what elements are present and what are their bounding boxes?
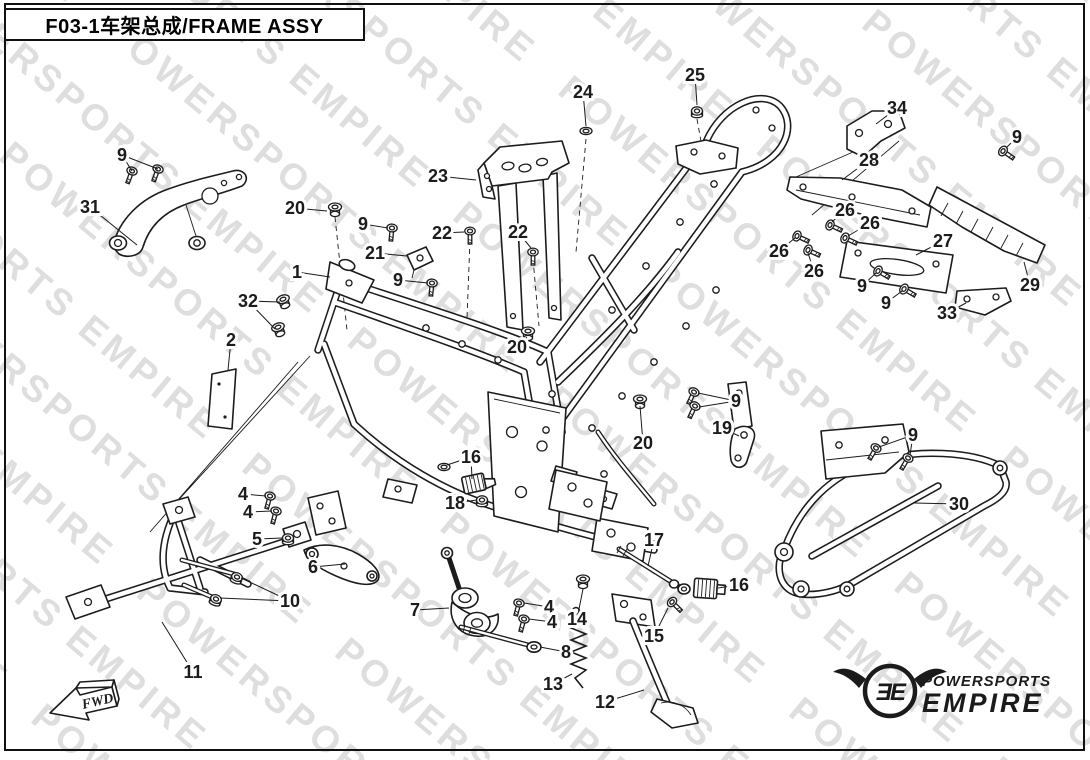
leader-line bbox=[122, 155, 158, 169]
callout-label: 34 bbox=[887, 98, 907, 118]
callout-label: 21 bbox=[365, 243, 385, 263]
link-19 bbox=[730, 426, 754, 467]
callout-label: 12 bbox=[595, 692, 615, 712]
bushing-icon bbox=[270, 321, 287, 338]
bolt-icon bbox=[666, 596, 685, 615]
callout-label: 29 bbox=[1020, 275, 1040, 295]
bolt-icon bbox=[528, 248, 538, 265]
callout-label: 26 bbox=[804, 261, 824, 281]
side-stand-12 bbox=[612, 594, 698, 728]
washer-icon bbox=[580, 127, 592, 134]
callout-label: 4 bbox=[243, 502, 253, 522]
tensioner-7 bbox=[442, 548, 499, 637]
bolt-icon bbox=[426, 279, 438, 297]
callout-label: 16 bbox=[461, 447, 481, 467]
callout-label: 9 bbox=[393, 270, 403, 290]
callout-label: 28 bbox=[859, 150, 879, 170]
frame-assembly-diagram: FWD ƎE POWERSPORTS EMPIRE 93120923222224… bbox=[0, 0, 1090, 760]
bolt-icon bbox=[791, 230, 811, 247]
callout-label: 18 bbox=[445, 493, 465, 513]
callout-label: 20 bbox=[285, 198, 305, 218]
callout-label: 15 bbox=[644, 626, 664, 646]
callout-label: 13 bbox=[543, 674, 563, 694]
callout-label: 4 bbox=[547, 612, 557, 632]
rear-brackets bbox=[787, 111, 1045, 315]
callout-label: 26 bbox=[769, 241, 789, 261]
callout-label: 11 bbox=[183, 662, 202, 682]
fwd-arrow: FWD bbox=[50, 680, 119, 720]
callout-label: 9 bbox=[881, 293, 891, 313]
bolt-icon bbox=[268, 506, 282, 525]
callout-label: 33 bbox=[937, 303, 957, 323]
callout-label: 27 bbox=[933, 231, 953, 251]
callout-label: 9 bbox=[358, 214, 368, 234]
callout-label: 26 bbox=[860, 213, 880, 233]
callout-label: 9 bbox=[908, 425, 918, 445]
callout-label: 32 bbox=[238, 291, 258, 311]
bushing-icon bbox=[577, 575, 590, 589]
plate-2 bbox=[208, 369, 236, 429]
callout-label: 9 bbox=[1012, 127, 1022, 147]
knurled-bushing-16-left bbox=[461, 471, 496, 494]
bushing-icon bbox=[329, 203, 342, 217]
callout-label: 9 bbox=[117, 145, 127, 165]
callout-label: 4 bbox=[238, 484, 248, 504]
nut-icon bbox=[283, 534, 294, 545]
rear-rack-30 bbox=[728, 382, 1007, 597]
callout-label: 20 bbox=[633, 433, 653, 453]
logo-line2: EMPIRE bbox=[922, 688, 1044, 718]
callout-label: 22 bbox=[508, 222, 528, 242]
bolt-icon bbox=[386, 224, 398, 242]
title-box: F03-1车架总成/FRAME ASSY bbox=[4, 8, 365, 41]
bracket-21 bbox=[407, 247, 433, 278]
callout-label: 17 bbox=[644, 530, 664, 550]
callout-label: 25 bbox=[685, 65, 705, 85]
bolt-icon bbox=[802, 244, 822, 261]
callout-label: 20 bbox=[507, 337, 527, 357]
logo-wing-left-icon bbox=[833, 669, 866, 688]
callout-label: 8 bbox=[561, 642, 571, 662]
callout-label: 31 bbox=[80, 197, 100, 217]
callout-label: 5 bbox=[252, 529, 262, 549]
callout-label: 22 bbox=[432, 223, 452, 243]
nut-icon bbox=[477, 496, 488, 507]
callout-label: 23 bbox=[428, 166, 448, 186]
callout-label: 6 bbox=[308, 557, 318, 577]
leader-line bbox=[415, 608, 449, 610]
callout-label: 30 bbox=[949, 494, 969, 514]
callout-label: 9 bbox=[857, 276, 867, 296]
bolt-icon bbox=[465, 227, 475, 244]
bolt-icon bbox=[824, 219, 844, 236]
page-title: F03-1车架总成/FRAME ASSY bbox=[45, 10, 323, 39]
callout-label: 24 bbox=[573, 82, 593, 102]
callout-label: 1 bbox=[292, 262, 302, 282]
callout-label: 26 bbox=[835, 200, 855, 220]
brand-logo: ƎE POWERSPORTS EMPIRE bbox=[833, 666, 1051, 718]
callout-label: 2 bbox=[226, 330, 236, 350]
callout-label: 9 bbox=[731, 391, 741, 411]
nut-icon bbox=[692, 107, 703, 118]
knurled-bushing-16-right bbox=[693, 578, 725, 599]
logo-monogram-icon: ƎE bbox=[876, 679, 907, 706]
callout-label: 19 bbox=[712, 418, 732, 438]
bolt-icon bbox=[511, 598, 525, 617]
callout-label: 14 bbox=[567, 609, 587, 629]
catalog-page: POWERSPORTS EMPIRE POWERSPORTS EMPIRE PO… bbox=[0, 0, 1090, 760]
callout-label: 10 bbox=[280, 591, 300, 611]
callout-label: 7 bbox=[410, 600, 420, 620]
callout-label: 16 bbox=[729, 575, 749, 595]
